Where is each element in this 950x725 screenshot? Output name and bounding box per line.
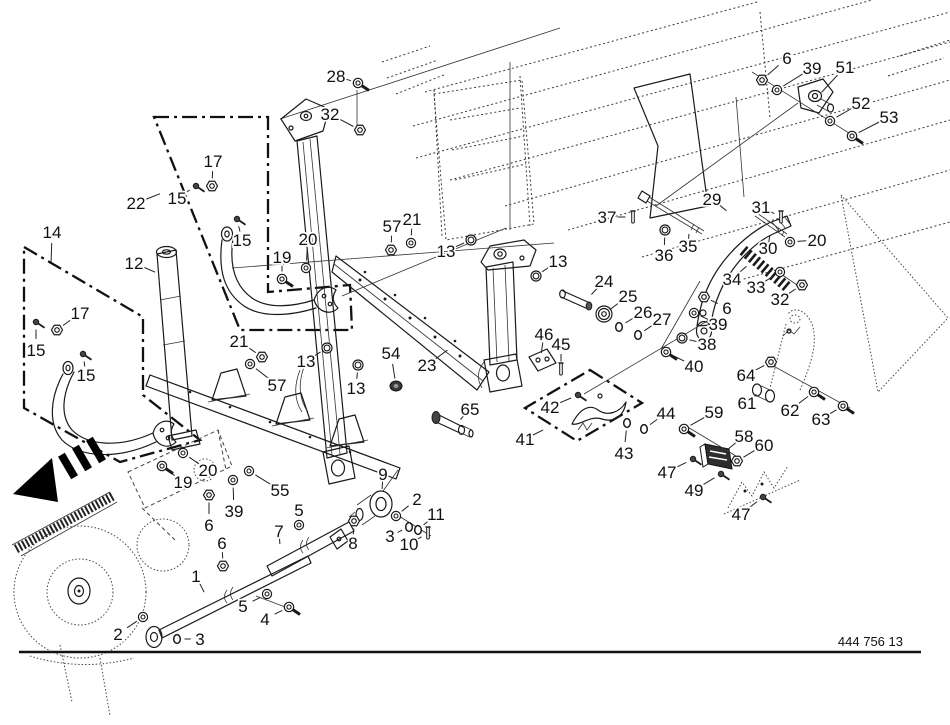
part-number: 36 xyxy=(655,246,674,265)
part-number: 59 xyxy=(705,403,724,422)
sleeve-icon xyxy=(531,271,541,281)
part-number: 55 xyxy=(271,481,290,500)
part-number: 31 xyxy=(752,198,771,217)
part-number: 45 xyxy=(552,335,571,354)
nut-icon xyxy=(385,244,396,255)
part-callout-7: 7 xyxy=(274,522,283,544)
washer-icon xyxy=(391,511,400,520)
leader-line xyxy=(357,373,358,379)
leader-line xyxy=(798,241,807,242)
part-number: 58 xyxy=(735,427,754,446)
nut-icon xyxy=(256,351,267,362)
nut-icon xyxy=(51,324,62,335)
part-number: 39 xyxy=(803,59,822,78)
sleeve-icon xyxy=(322,343,332,353)
part-number: 63 xyxy=(812,410,831,429)
part-number: 5 xyxy=(294,501,303,520)
washer-icon xyxy=(785,237,794,246)
part-number: 15 xyxy=(77,366,96,385)
part-number: 65 xyxy=(461,400,480,419)
ring-icon xyxy=(415,526,422,535)
part-number: 3 xyxy=(195,630,204,649)
part-number: 51 xyxy=(836,58,855,77)
part-number: 20 xyxy=(299,230,318,249)
nut-icon xyxy=(796,279,807,290)
nut-icon xyxy=(731,455,742,466)
part-number: 13 xyxy=(549,252,568,271)
part-callout-5: 5 xyxy=(294,501,303,530)
part-number: 23 xyxy=(418,356,437,375)
part-number: 60 xyxy=(755,436,774,455)
sleeve-icon xyxy=(660,225,670,235)
part-number: 47 xyxy=(658,463,677,482)
part-number: 29 xyxy=(703,190,722,209)
part-number: 22 xyxy=(127,194,146,213)
part-number: 57 xyxy=(268,376,287,395)
part-number: 4 xyxy=(260,610,269,629)
part-number: 19 xyxy=(273,248,292,267)
part-number: 44 xyxy=(657,404,676,423)
part-number: 19 xyxy=(174,473,193,492)
part-number: 11 xyxy=(427,505,445,524)
part-number: 64 xyxy=(737,366,756,385)
part-number: 6 xyxy=(217,534,226,553)
washer-icon xyxy=(301,263,310,272)
part-number: 3 xyxy=(385,527,394,546)
part-number: 17 xyxy=(204,152,223,171)
washer-icon xyxy=(262,589,271,598)
ring-icon xyxy=(624,419,631,428)
part-number: 14 xyxy=(43,223,62,242)
part-number: 2 xyxy=(412,490,421,509)
part-number: 43 xyxy=(615,444,634,463)
part-number: 30 xyxy=(759,239,778,258)
part-number: 33 xyxy=(747,278,766,297)
leader-line xyxy=(307,250,308,261)
washer-icon xyxy=(406,238,415,247)
part-number: 34 xyxy=(723,270,742,289)
nut-icon xyxy=(765,356,776,367)
part-number: 15 xyxy=(233,231,252,250)
washer-icon xyxy=(228,475,237,484)
part-number: 15 xyxy=(168,189,187,208)
ring-icon xyxy=(635,331,642,340)
part-number: 10 xyxy=(400,535,419,554)
part-number: 32 xyxy=(771,290,790,309)
part-number: 13 xyxy=(347,379,366,398)
washer-icon xyxy=(138,612,147,621)
nut-icon xyxy=(203,489,214,500)
nut-icon xyxy=(354,124,365,135)
part-number: 37 xyxy=(598,208,617,227)
nut-icon xyxy=(217,560,228,571)
part-number: 27 xyxy=(653,310,672,329)
part-number: 1 xyxy=(191,567,200,586)
part-number: 12 xyxy=(125,254,144,273)
washer-icon xyxy=(294,520,303,529)
sleeve-icon xyxy=(466,235,476,245)
nut-icon xyxy=(348,515,359,526)
part-number: 5 xyxy=(238,597,247,616)
nut-icon xyxy=(698,291,709,302)
washer-icon xyxy=(825,116,834,125)
part-callout-61: 61 xyxy=(738,394,757,413)
part-number: 20 xyxy=(808,231,827,250)
part-number: 13 xyxy=(437,242,456,261)
part-number: 49 xyxy=(685,481,704,500)
part-number: 15 xyxy=(27,341,46,360)
part-number: 32 xyxy=(321,105,340,124)
part-number: 2 xyxy=(113,625,122,644)
part-number: 21 xyxy=(403,210,422,229)
ring-icon xyxy=(406,523,413,532)
part-number: 21 xyxy=(230,332,249,351)
part-number: 35 xyxy=(679,237,698,256)
part-number: 9 xyxy=(378,465,387,484)
part-number: 28 xyxy=(327,67,346,86)
part-number: 47 xyxy=(732,505,751,524)
part-number: 6 xyxy=(782,49,791,68)
part-number: 57 xyxy=(383,217,402,236)
part-number: 8 xyxy=(348,534,357,553)
part-number: 7 xyxy=(274,522,283,541)
part-number: 40 xyxy=(685,357,704,376)
part-number: 26 xyxy=(634,303,653,322)
ring-icon xyxy=(616,323,623,332)
part-number: 53 xyxy=(880,108,899,127)
sleeve-icon xyxy=(677,333,687,343)
part-number: 24 xyxy=(595,272,614,291)
part-number: 39 xyxy=(225,502,244,521)
washer-icon xyxy=(178,448,187,457)
part-callout-35: 35 xyxy=(679,234,698,256)
part-number: 41 xyxy=(516,430,535,449)
parts-diagram: 444 756 13 28321715152214121920572113131… xyxy=(0,0,950,725)
plug-icon xyxy=(390,381,402,391)
nut-icon xyxy=(206,180,217,191)
washer-icon xyxy=(775,267,784,276)
washer-icon xyxy=(772,85,781,94)
part-number: 38 xyxy=(698,335,717,354)
sleeve-icon xyxy=(353,360,363,370)
washer-icon xyxy=(244,466,253,475)
part-number: 62 xyxy=(781,401,800,420)
part-number: 52 xyxy=(852,94,871,113)
part-number: 17 xyxy=(71,304,90,323)
part-number: 42 xyxy=(541,398,560,417)
ring-icon xyxy=(174,635,181,644)
part-callout-65: 65 xyxy=(460,400,479,420)
part-number: 61 xyxy=(738,394,757,413)
washer-icon xyxy=(245,359,254,368)
ring-icon xyxy=(641,425,648,434)
part-number: 39 xyxy=(709,315,728,334)
nut-icon xyxy=(756,74,767,85)
washer-icon xyxy=(689,308,698,317)
part-number: 54 xyxy=(382,344,401,363)
part-number: 20 xyxy=(199,461,218,480)
leader-line xyxy=(51,243,52,262)
drawing-number: 444 756 13 xyxy=(838,634,903,649)
part-number: 6 xyxy=(204,516,213,535)
part-callout-30: 30 xyxy=(759,236,778,258)
part-number: 13 xyxy=(297,352,316,371)
